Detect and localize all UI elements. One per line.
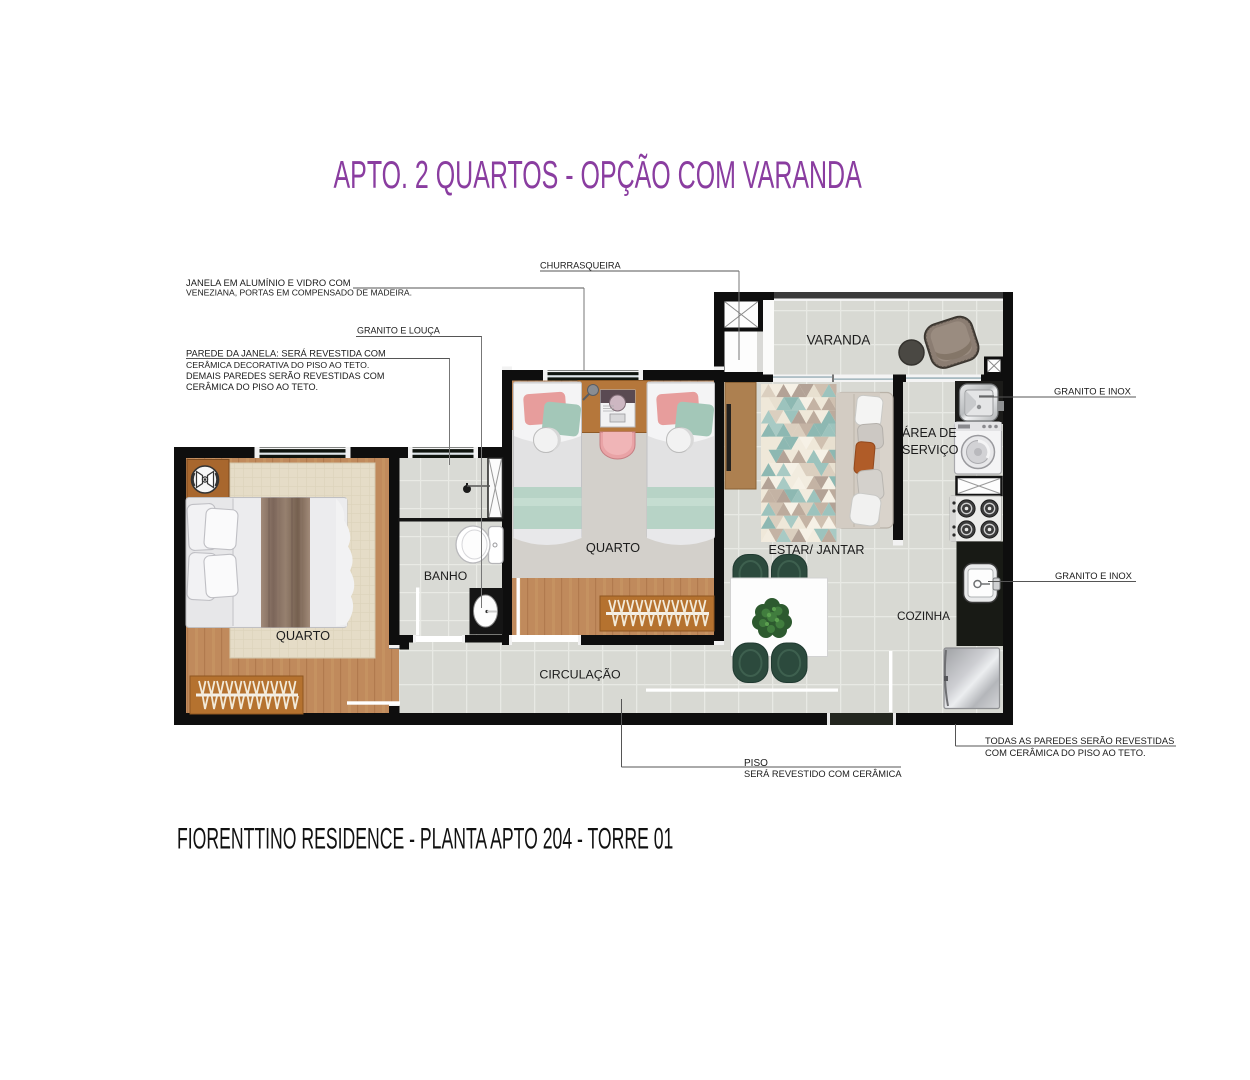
svg-text:APTO. 2 QUARTOS - OPÇÃO COM VA: APTO. 2 QUARTOS - OPÇÃO COM VARANDA: [334, 152, 863, 196]
svg-text:COM CERÂMICA DO PISO AO TETO.: COM CERÂMICA DO PISO AO TETO.: [985, 747, 1146, 758]
svg-text:QUARTO: QUARTO: [276, 628, 330, 643]
svg-text:CIRCULAÇÃO: CIRCULAÇÃO: [539, 668, 621, 682]
svg-text:BANHO: BANHO: [424, 569, 467, 583]
svg-text:FIORENTTINO RESIDENCE - PLANTA: FIORENTTINO RESIDENCE - PLANTA APTO 204 …: [177, 823, 673, 856]
svg-text:GRANITO E INOX: GRANITO E INOX: [1054, 386, 1132, 397]
svg-text:PAREDE DA JANELA: SERÁ REVESTI: PAREDE DA JANELA: SERÁ REVESTIDA COM: [186, 349, 386, 359]
svg-text:PISO: PISO: [744, 758, 768, 769]
svg-text:COZINHA: COZINHA: [897, 609, 950, 623]
svg-text:ESTAR/ JANTAR: ESTAR/ JANTAR: [768, 543, 864, 557]
svg-text:CERÂMICA DECORATIVA DO PISO AO: CERÂMICA DECORATIVA DO PISO AO TETO.: [186, 360, 369, 370]
svg-text:VARANDA: VARANDA: [807, 333, 871, 348]
svg-text:TODAS AS PAREDES SERÃO REVESTI: TODAS AS PAREDES SERÃO REVESTIDAS: [985, 736, 1174, 746]
svg-text:SERÁ REVESTIDO COM CERÂMICA: SERÁ REVESTIDO COM CERÂMICA: [744, 769, 902, 779]
svg-text:GRANITO E INOX: GRANITO E INOX: [1055, 570, 1133, 581]
svg-text:QUARTO: QUARTO: [586, 540, 640, 555]
svg-text:VENEZIANA, PORTAS EM COMPENSAD: VENEZIANA, PORTAS EM COMPENSADO DE MADEI…: [186, 288, 412, 298]
svg-text:CHURRASQUEIRA: CHURRASQUEIRA: [540, 261, 622, 271]
svg-text:JANELA EM ALUMÍNIO E VIDRO COM: JANELA EM ALUMÍNIO E VIDRO COM: [186, 277, 351, 288]
svg-text:SERVIÇO: SERVIÇO: [902, 443, 959, 457]
svg-text:GRANITO E LOUÇA: GRANITO E LOUÇA: [357, 326, 440, 336]
svg-text:DEMAIS PAREDES SERÃO REVESTIDA: DEMAIS PAREDES SERÃO REVESTIDAS COM: [186, 371, 384, 381]
svg-text:ÁREA DE: ÁREA DE: [902, 425, 957, 440]
svg-text:CERÂMICA DO PISO AO TETO.: CERÂMICA DO PISO AO TETO.: [186, 382, 318, 392]
